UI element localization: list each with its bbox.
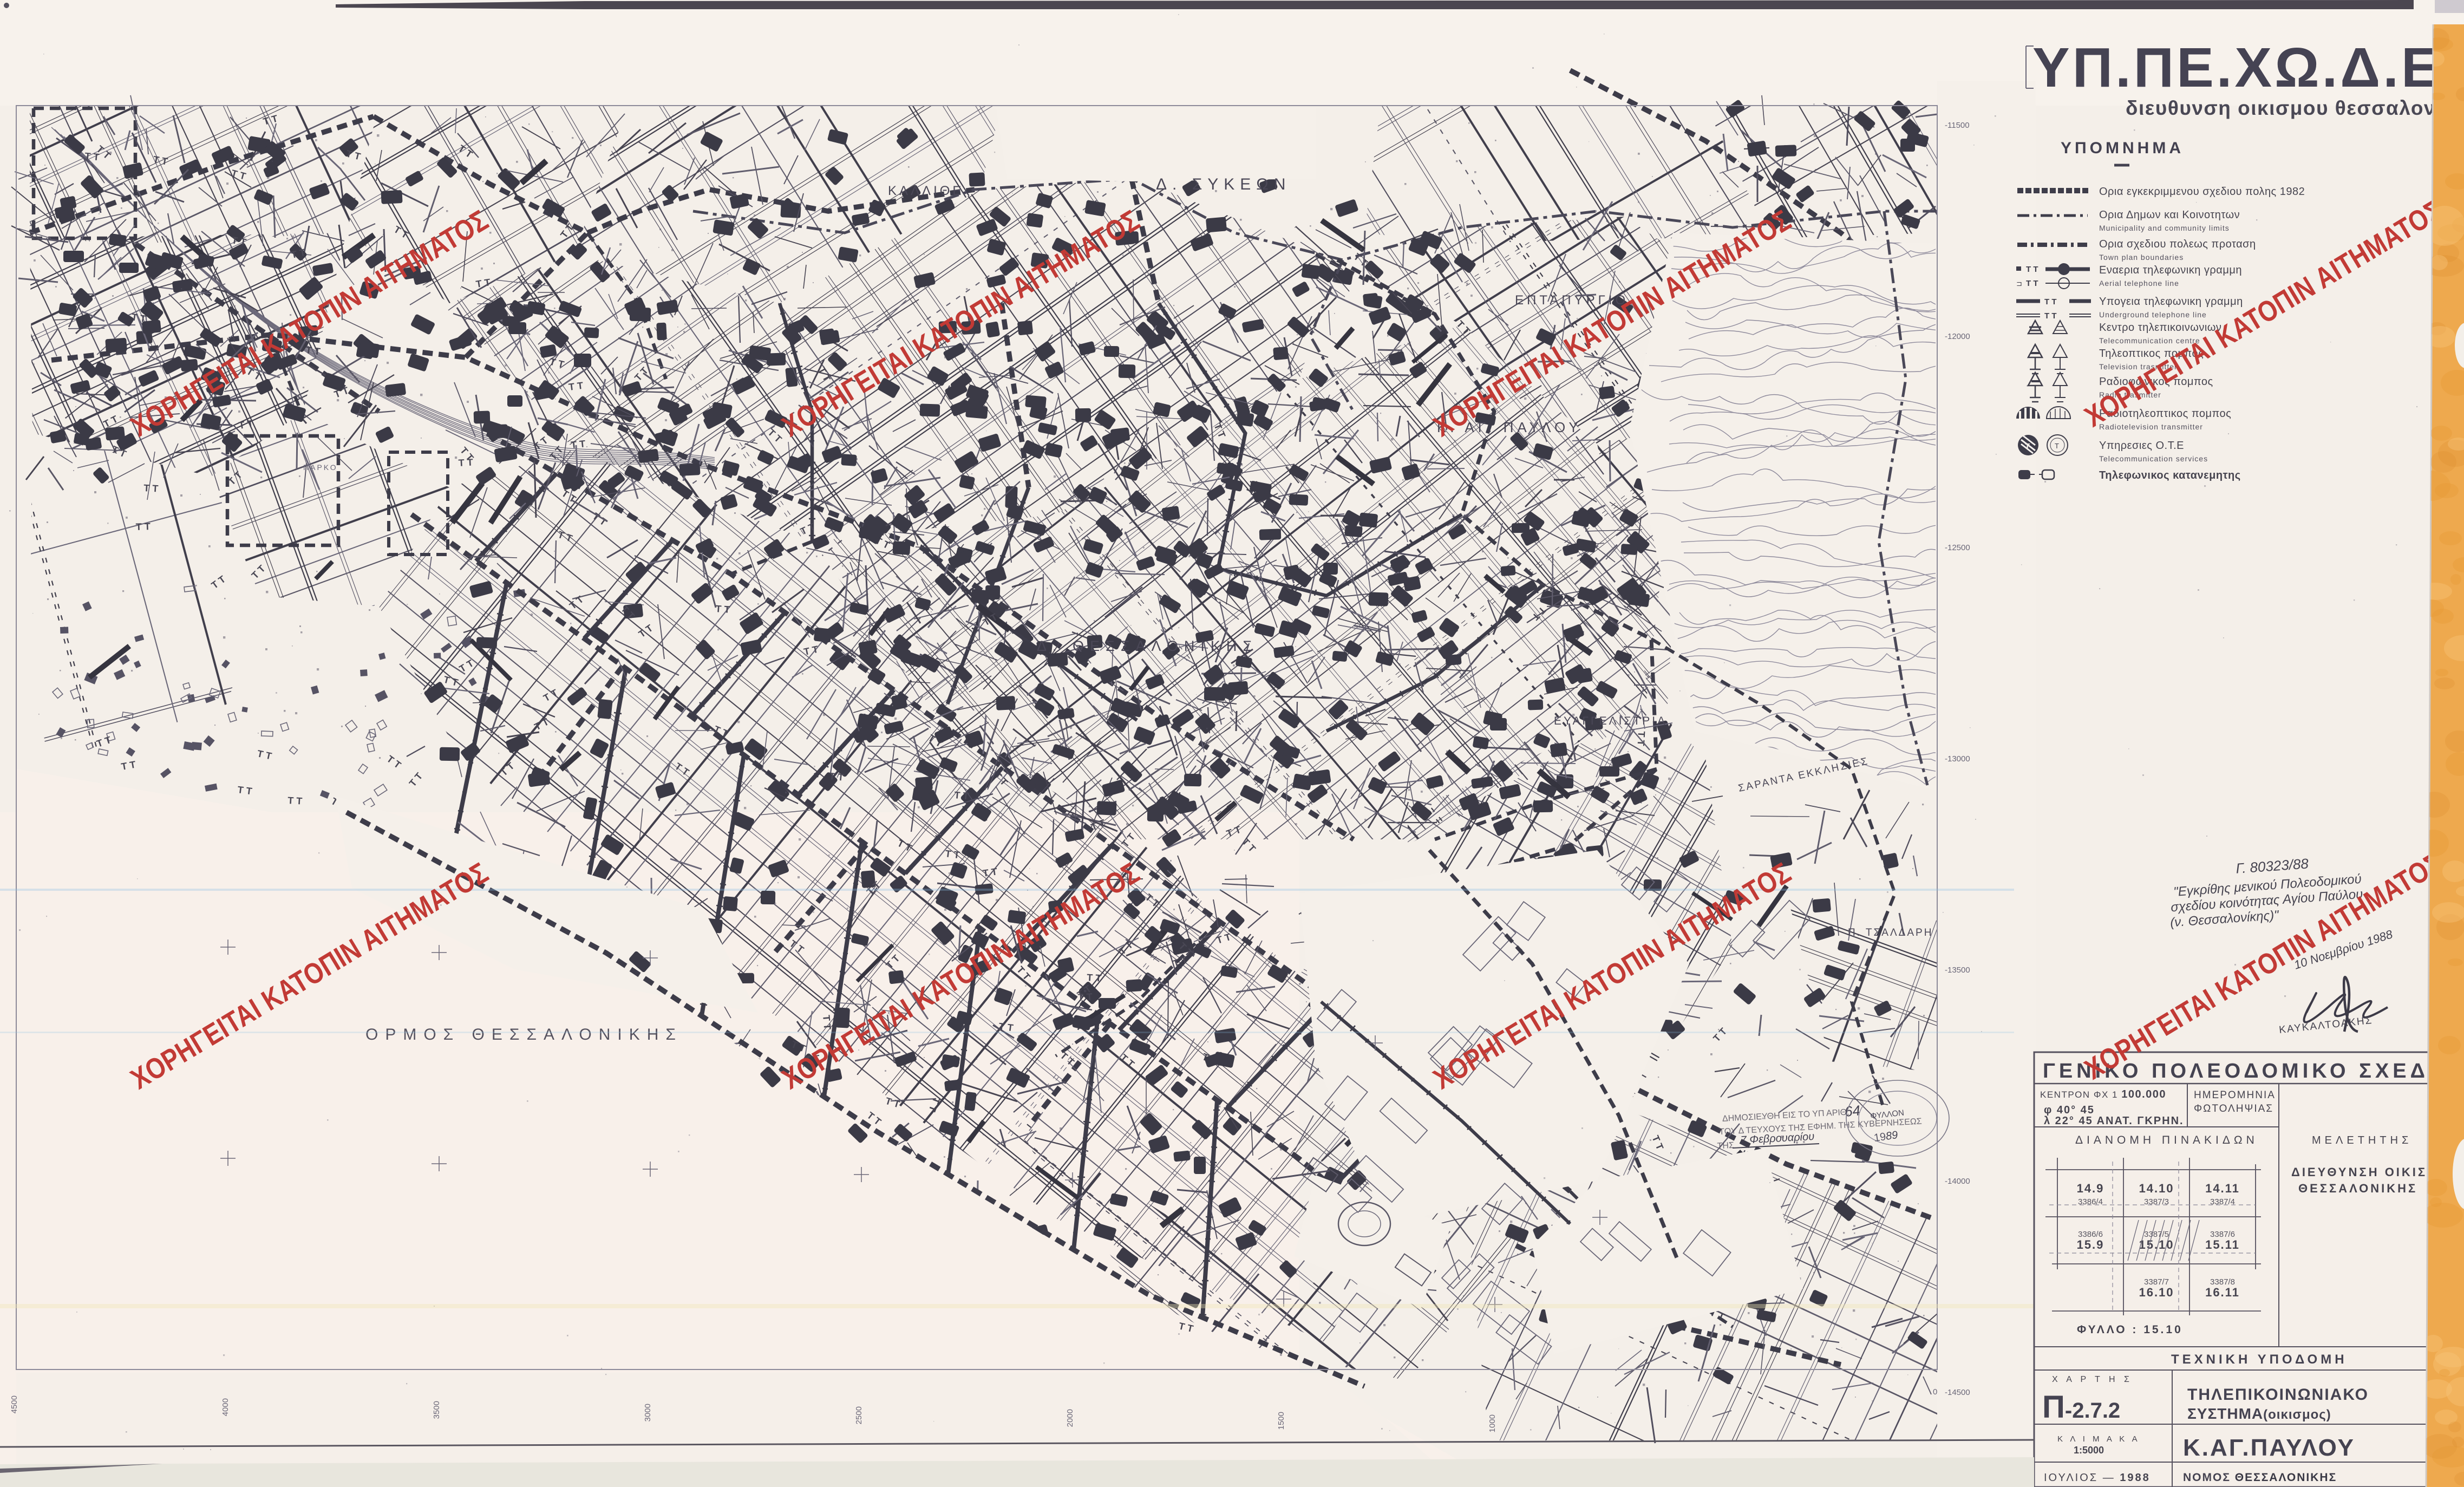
svg-text:Telecommunication services: Telecommunication services xyxy=(2099,454,2208,463)
svg-text:Εναερια τηλεφωνικη γραμμη: Εναερια τηλεφωνικη γραμμη xyxy=(2099,264,2242,276)
svg-text:T T: T T xyxy=(1087,972,1102,983)
svg-text:2500: 2500 xyxy=(854,1406,864,1424)
svg-text:Τηλεφωνικος κατανεμητης: Τηλεφωνικος κατανεμητης xyxy=(2099,469,2241,481)
svg-text:ΠΑΡΚΟ: ΠΑΡΚΟ xyxy=(303,463,338,472)
svg-text:14.9: 14.9 xyxy=(2077,1182,2104,1195)
svg-text:-12000: -12000 xyxy=(1945,332,1970,341)
svg-text:⊐: ⊐ xyxy=(2016,279,2022,288)
svg-text:ΤΗΛΕΠΙΚΟΙΝΩΝΙΑΚΟ: ΤΗΛΕΠΙΚΟΙΝΩΝΙΑΚΟ xyxy=(2187,1386,2369,1404)
svg-text:T T: T T xyxy=(475,277,491,290)
svg-text:T T: T T xyxy=(2044,297,2057,306)
svg-text:ΚΑΛΛΙΘΕ: ΚΑΛΛΙΘΕ xyxy=(888,184,964,198)
svg-text:ΜΕΛΕΤΗΤΗΣ: ΜΕΛΕΤΗΤΗΣ xyxy=(2312,1134,2412,1146)
svg-text:-14500: -14500 xyxy=(1945,1388,1970,1397)
svg-text:T T: T T xyxy=(998,1021,1014,1033)
svg-text:Ορια Δημων και Κοινοτητων: Ορια Δημων και Κοινοτητων xyxy=(2099,209,2240,221)
svg-text:ΗΜΕΡΟΜΗΝΙΑ: ΗΜΕΡΟΜΗΝΙΑ xyxy=(2194,1090,2276,1101)
svg-text:T T: T T xyxy=(238,418,254,431)
svg-text:T T: T T xyxy=(821,1015,833,1031)
svg-text:1000: 1000 xyxy=(1488,1414,1497,1432)
svg-text:2000: 2000 xyxy=(1066,1409,1075,1427)
svg-text:16.10: 16.10 xyxy=(2139,1286,2174,1299)
svg-text:Χ Α Ρ Τ Η Σ: Χ Α Ρ Τ Η Σ xyxy=(2052,1375,2133,1384)
svg-text:0: 0 xyxy=(1933,1387,1937,1397)
svg-text:διευθυνση οικισμου θεσσαλονικη: διευθυνση οικισμου θεσσαλονικη xyxy=(2126,97,2464,119)
svg-text:ΕΥΑΓΓΕΛΙΣΤΡΙΑ: ΕΥΑΓΓΕΛΙΣΤΡΙΑ xyxy=(1554,715,1667,727)
svg-text:Radiotelevision transmitter: Radiotelevision transmitter xyxy=(2099,422,2203,431)
svg-text:Κ.ΑΓ.ΠΑΥΛΟΥ: Κ.ΑΓ.ΠΑΥΛΟΥ xyxy=(2183,1434,2355,1461)
svg-text:3500: 3500 xyxy=(432,1401,441,1419)
svg-text:Aerial telephone line: Aerial telephone line xyxy=(2099,279,2179,288)
svg-text:T T: T T xyxy=(130,311,147,324)
svg-text:T T: T T xyxy=(84,151,100,162)
svg-text:-14000: -14000 xyxy=(1945,1177,1970,1186)
svg-text:1500: 1500 xyxy=(1277,1412,1286,1430)
svg-text:14.11: 14.11 xyxy=(2205,1182,2240,1195)
svg-text:4000: 4000 xyxy=(221,1398,230,1416)
svg-text:Underground telephone line: Underground telephone line xyxy=(2099,310,2207,319)
svg-text:Δ. ΣΥΚΕΩΝ: Δ. ΣΥΚΕΩΝ xyxy=(1156,175,1291,193)
svg-text:ΙΟΥΛΙΟΣ — 1988: ΙΟΥΛΙΟΣ — 1988 xyxy=(2044,1472,2151,1484)
svg-text:Town plan boundaries: Town plan boundaries xyxy=(2099,253,2184,262)
svg-text:-13500: -13500 xyxy=(1945,966,1970,975)
svg-text:T T: T T xyxy=(135,521,151,532)
svg-text:λ 22° 45 ΑΝΑΤ. ΓΚΡΗΝ.: λ 22° 45 ΑΝΑΤ. ΓΚΡΗΝ. xyxy=(2044,1115,2184,1127)
svg-text:Υπηρεσιες Ο.Τ.Ε: Υπηρεσιες Ο.Τ.Ε xyxy=(2099,440,2184,452)
svg-text:-11500: -11500 xyxy=(1945,121,1970,130)
svg-text:ΔΙΑΝΟΜΗ ΠΙΝΑΚΙΔΩΝ: ΔΙΑΝΟΜΗ ΠΙΝΑΚΙΔΩΝ xyxy=(2075,1134,2258,1146)
svg-text:-12500: -12500 xyxy=(1945,543,1970,552)
svg-text:ΤΗΣ: ΤΗΣ xyxy=(1717,1141,1734,1151)
svg-text:Π. ΤΣΑΛΔΑΡΗ: Π. ΤΣΑΛΔΑΡΗ xyxy=(1848,927,1933,938)
svg-text:T T: T T xyxy=(2026,279,2038,288)
svg-text:T T: T T xyxy=(715,603,730,615)
svg-text:ΦΩΤΟΛΗΨΙΑΣ: ΦΩΤΟΛΗΨΙΑΣ xyxy=(2194,1103,2273,1114)
svg-text:1:5000: 1:5000 xyxy=(2074,1445,2104,1456)
svg-text:T T: T T xyxy=(237,784,253,797)
svg-text:T T: T T xyxy=(570,438,586,451)
svg-text:T: T xyxy=(2055,442,2059,450)
svg-text:Ορια εγκεκριμμενου σχεδιου πολ: Ορια εγκεκριμμενου σχεδιου πολης 1982 xyxy=(2099,186,2305,198)
svg-text:T T: T T xyxy=(954,790,970,801)
svg-text:14.10: 14.10 xyxy=(2139,1182,2174,1195)
svg-text:T T: T T xyxy=(568,380,584,393)
svg-text:15.11: 15.11 xyxy=(2205,1238,2240,1251)
svg-text:T T: T T xyxy=(2044,311,2057,321)
svg-text:ΣΥΣΤΗΜΑ(οικισμος): ΣΥΣΤΗΜΑ(οικισμος) xyxy=(2187,1405,2331,1422)
svg-text:ΤΕΧΝΙΚΗ ΥΠΟΔΟΜΗ: ΤΕΧΝΙΚΗ ΥΠΟΔΟΜΗ xyxy=(2171,1352,2348,1367)
svg-text:T T: T T xyxy=(945,848,960,860)
svg-text:Municipality and community lim: Municipality and community limits xyxy=(2099,224,2230,232)
svg-text:Ορια σχεδιου πολεως προταση: Ορια σχεδιου πολεως προταση xyxy=(2099,238,2256,250)
svg-text:T T: T T xyxy=(1636,731,1647,746)
svg-text:3000: 3000 xyxy=(643,1404,652,1421)
svg-text:ΚΕΝΤΡΟΝ ΦΧ 1 100.000: ΚΕΝΤΡΟΝ ΦΧ 1 100.000 xyxy=(2040,1088,2166,1100)
svg-text:ΝΟΜΟΣ ΘΕΣΣΑΛΟΝΙΚΗΣ: ΝΟΜΟΣ ΘΕΣΣΑΛΟΝΙΚΗΣ xyxy=(2183,1471,2337,1484)
svg-text:-13000: -13000 xyxy=(1945,754,1970,764)
svg-text:T T: T T xyxy=(143,482,159,494)
svg-text:Υπογεια τηλεφωνικη γραμμη: Υπογεια τηλεφωνικη γραμμη xyxy=(2099,296,2243,308)
svg-text:ΘΕΣΣΑΛΟΝΙΚΗΣ: ΘΕΣΣΑΛΟΝΙΚΗΣ xyxy=(2298,1182,2417,1195)
svg-text:ΦΥΛΛΟ : 15.10: ΦΥΛΛΟ : 15.10 xyxy=(2077,1323,2183,1336)
svg-text:T T: T T xyxy=(982,866,998,879)
svg-text:T T: T T xyxy=(305,344,321,357)
svg-text:T T: T T xyxy=(287,795,303,806)
svg-text:T T: T T xyxy=(2026,265,2038,274)
svg-text:ΟΡΜΟΣ ΘΕΣΣΑΛΟΝΙΚΗΣ: ΟΡΜΟΣ ΘΕΣΣΑΛΟΝΙΚΗΣ xyxy=(365,1026,683,1043)
svg-text:Δ. ΘΕΣΣΑΛΟΝΙΚΗΣ: Δ. ΘΕΣΣΑΛΟΝΙΚΗΣ xyxy=(1037,638,1258,654)
svg-text:T T: T T xyxy=(829,771,845,783)
svg-text:15.9: 15.9 xyxy=(2077,1238,2104,1251)
svg-text:T: T xyxy=(2025,442,2030,451)
svg-text:Κ Λ Ι Μ Α Κ Α: Κ Λ Ι Μ Α Κ Α xyxy=(2057,1434,2140,1444)
svg-text:ΥΠ.ΠΕ.ΧΩ.Δ.Ε: ΥΠ.ΠΕ.ΧΩ.Δ.Ε xyxy=(2032,36,2441,99)
svg-text:φ 40° 45: φ 40° 45 xyxy=(2044,1104,2095,1116)
svg-text:4500: 4500 xyxy=(10,1395,19,1413)
svg-text:ΥΠΟΜΝΗΜΑ: ΥΠΟΜΝΗΜΑ xyxy=(2061,139,2184,157)
svg-text:16.11: 16.11 xyxy=(2205,1286,2240,1299)
